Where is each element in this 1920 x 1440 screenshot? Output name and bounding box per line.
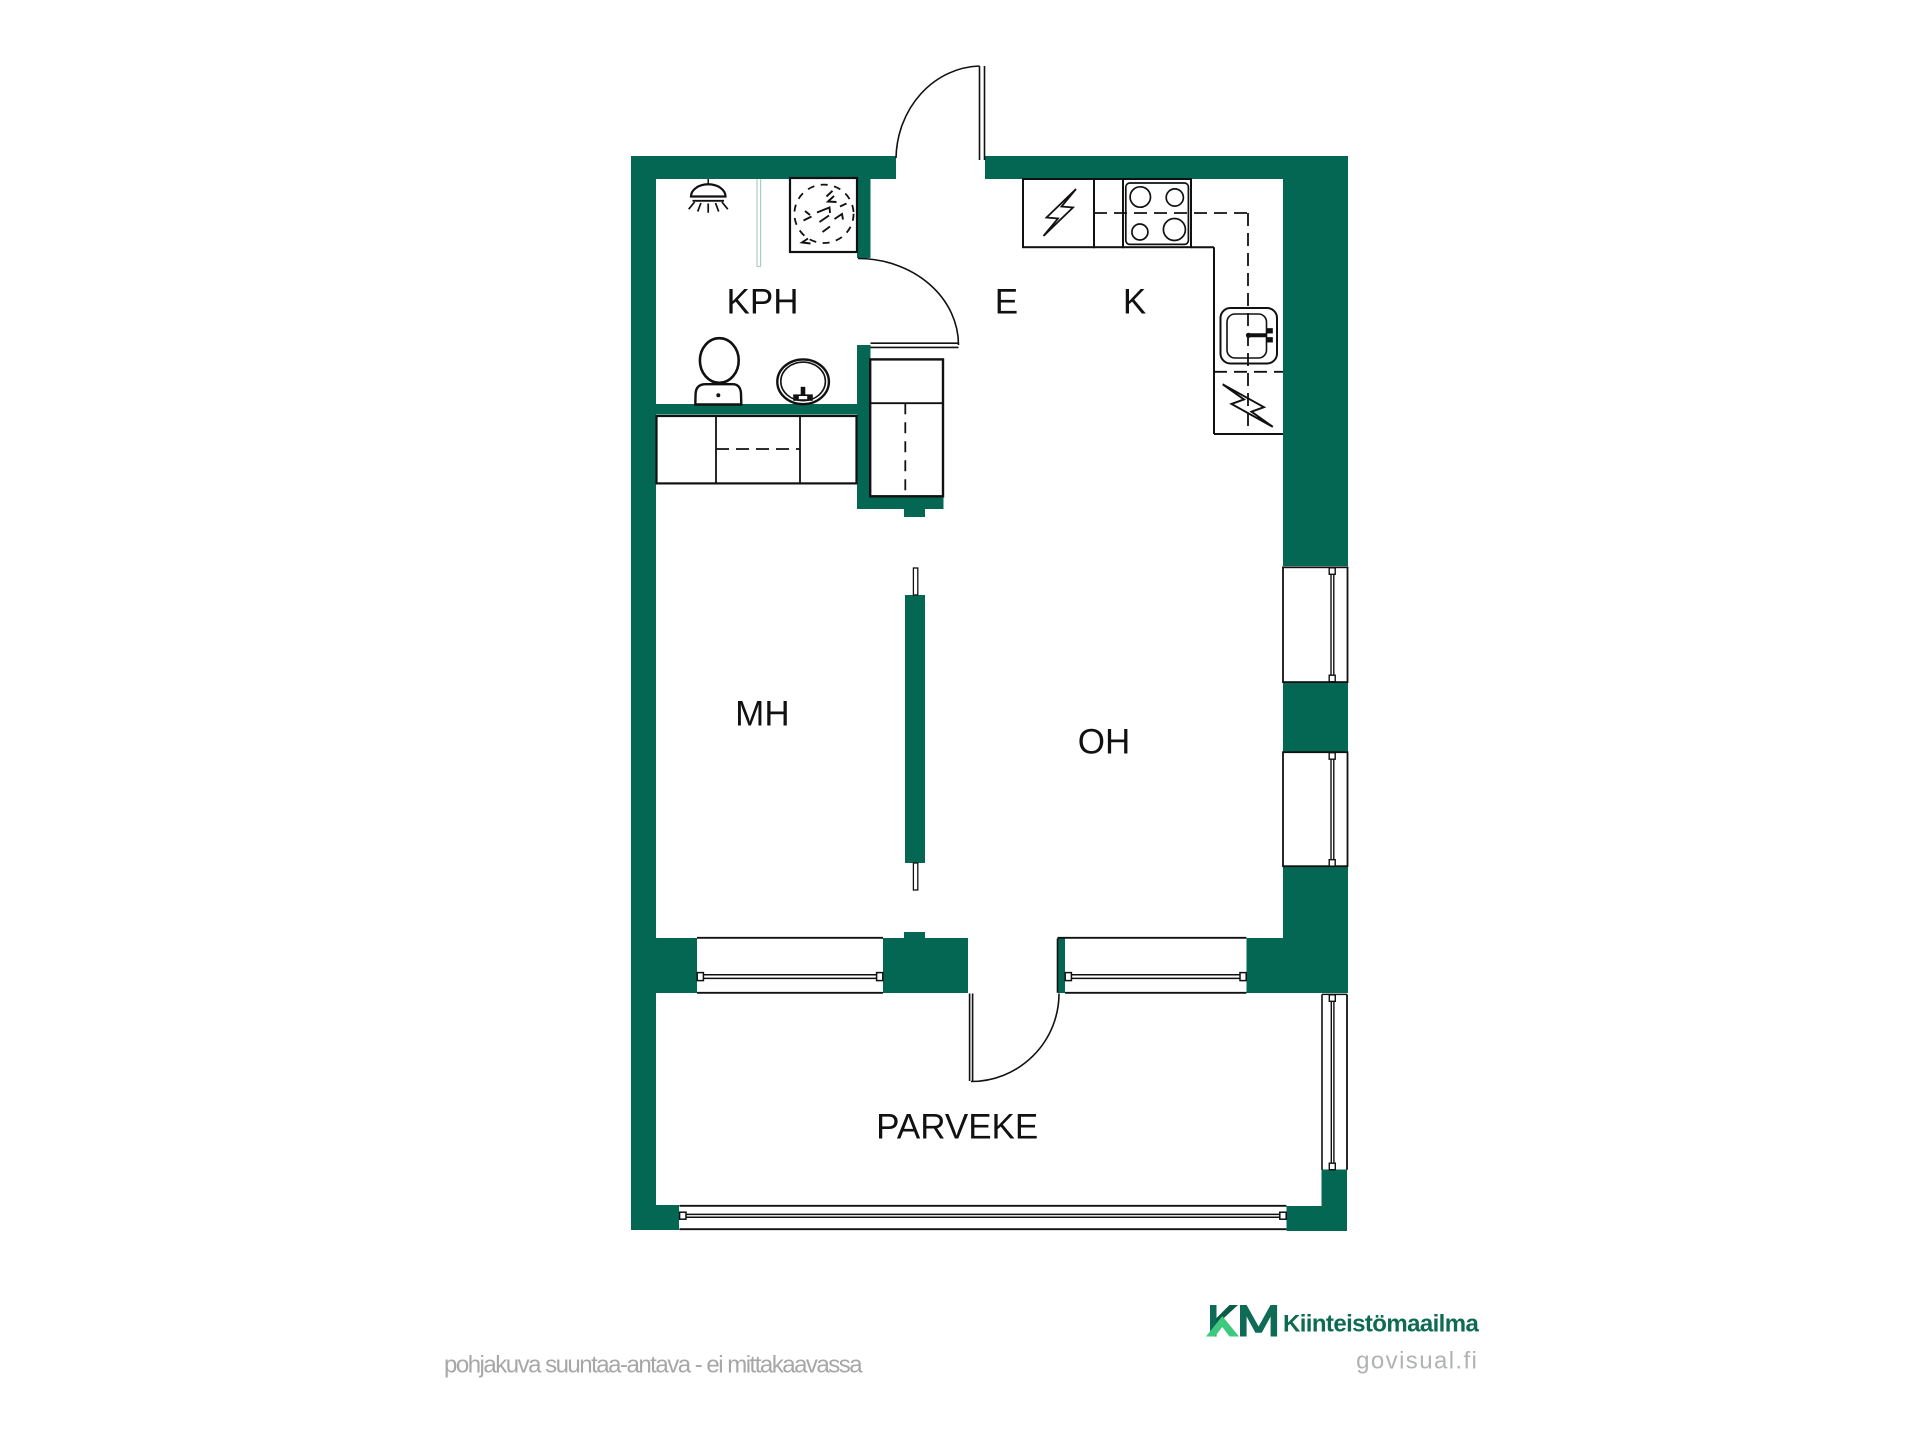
svg-text:govisual.fi: govisual.fi — [1356, 1348, 1478, 1375]
svg-text:K: K — [1123, 283, 1146, 322]
svg-text:MH: MH — [735, 694, 789, 733]
svg-text:PARVEKE: PARVEKE — [876, 1108, 1038, 1147]
svg-text:OH: OH — [1078, 723, 1131, 762]
svg-text:pohjakuva suuntaa-antava - ei: pohjakuva suuntaa-antava - ei mittakaava… — [444, 1352, 863, 1379]
svg-text:KPH: KPH — [727, 283, 799, 322]
svg-text:E: E — [995, 283, 1018, 322]
svg-text:Kiinteistömaailma: Kiinteistömaailma — [1283, 1311, 1479, 1338]
